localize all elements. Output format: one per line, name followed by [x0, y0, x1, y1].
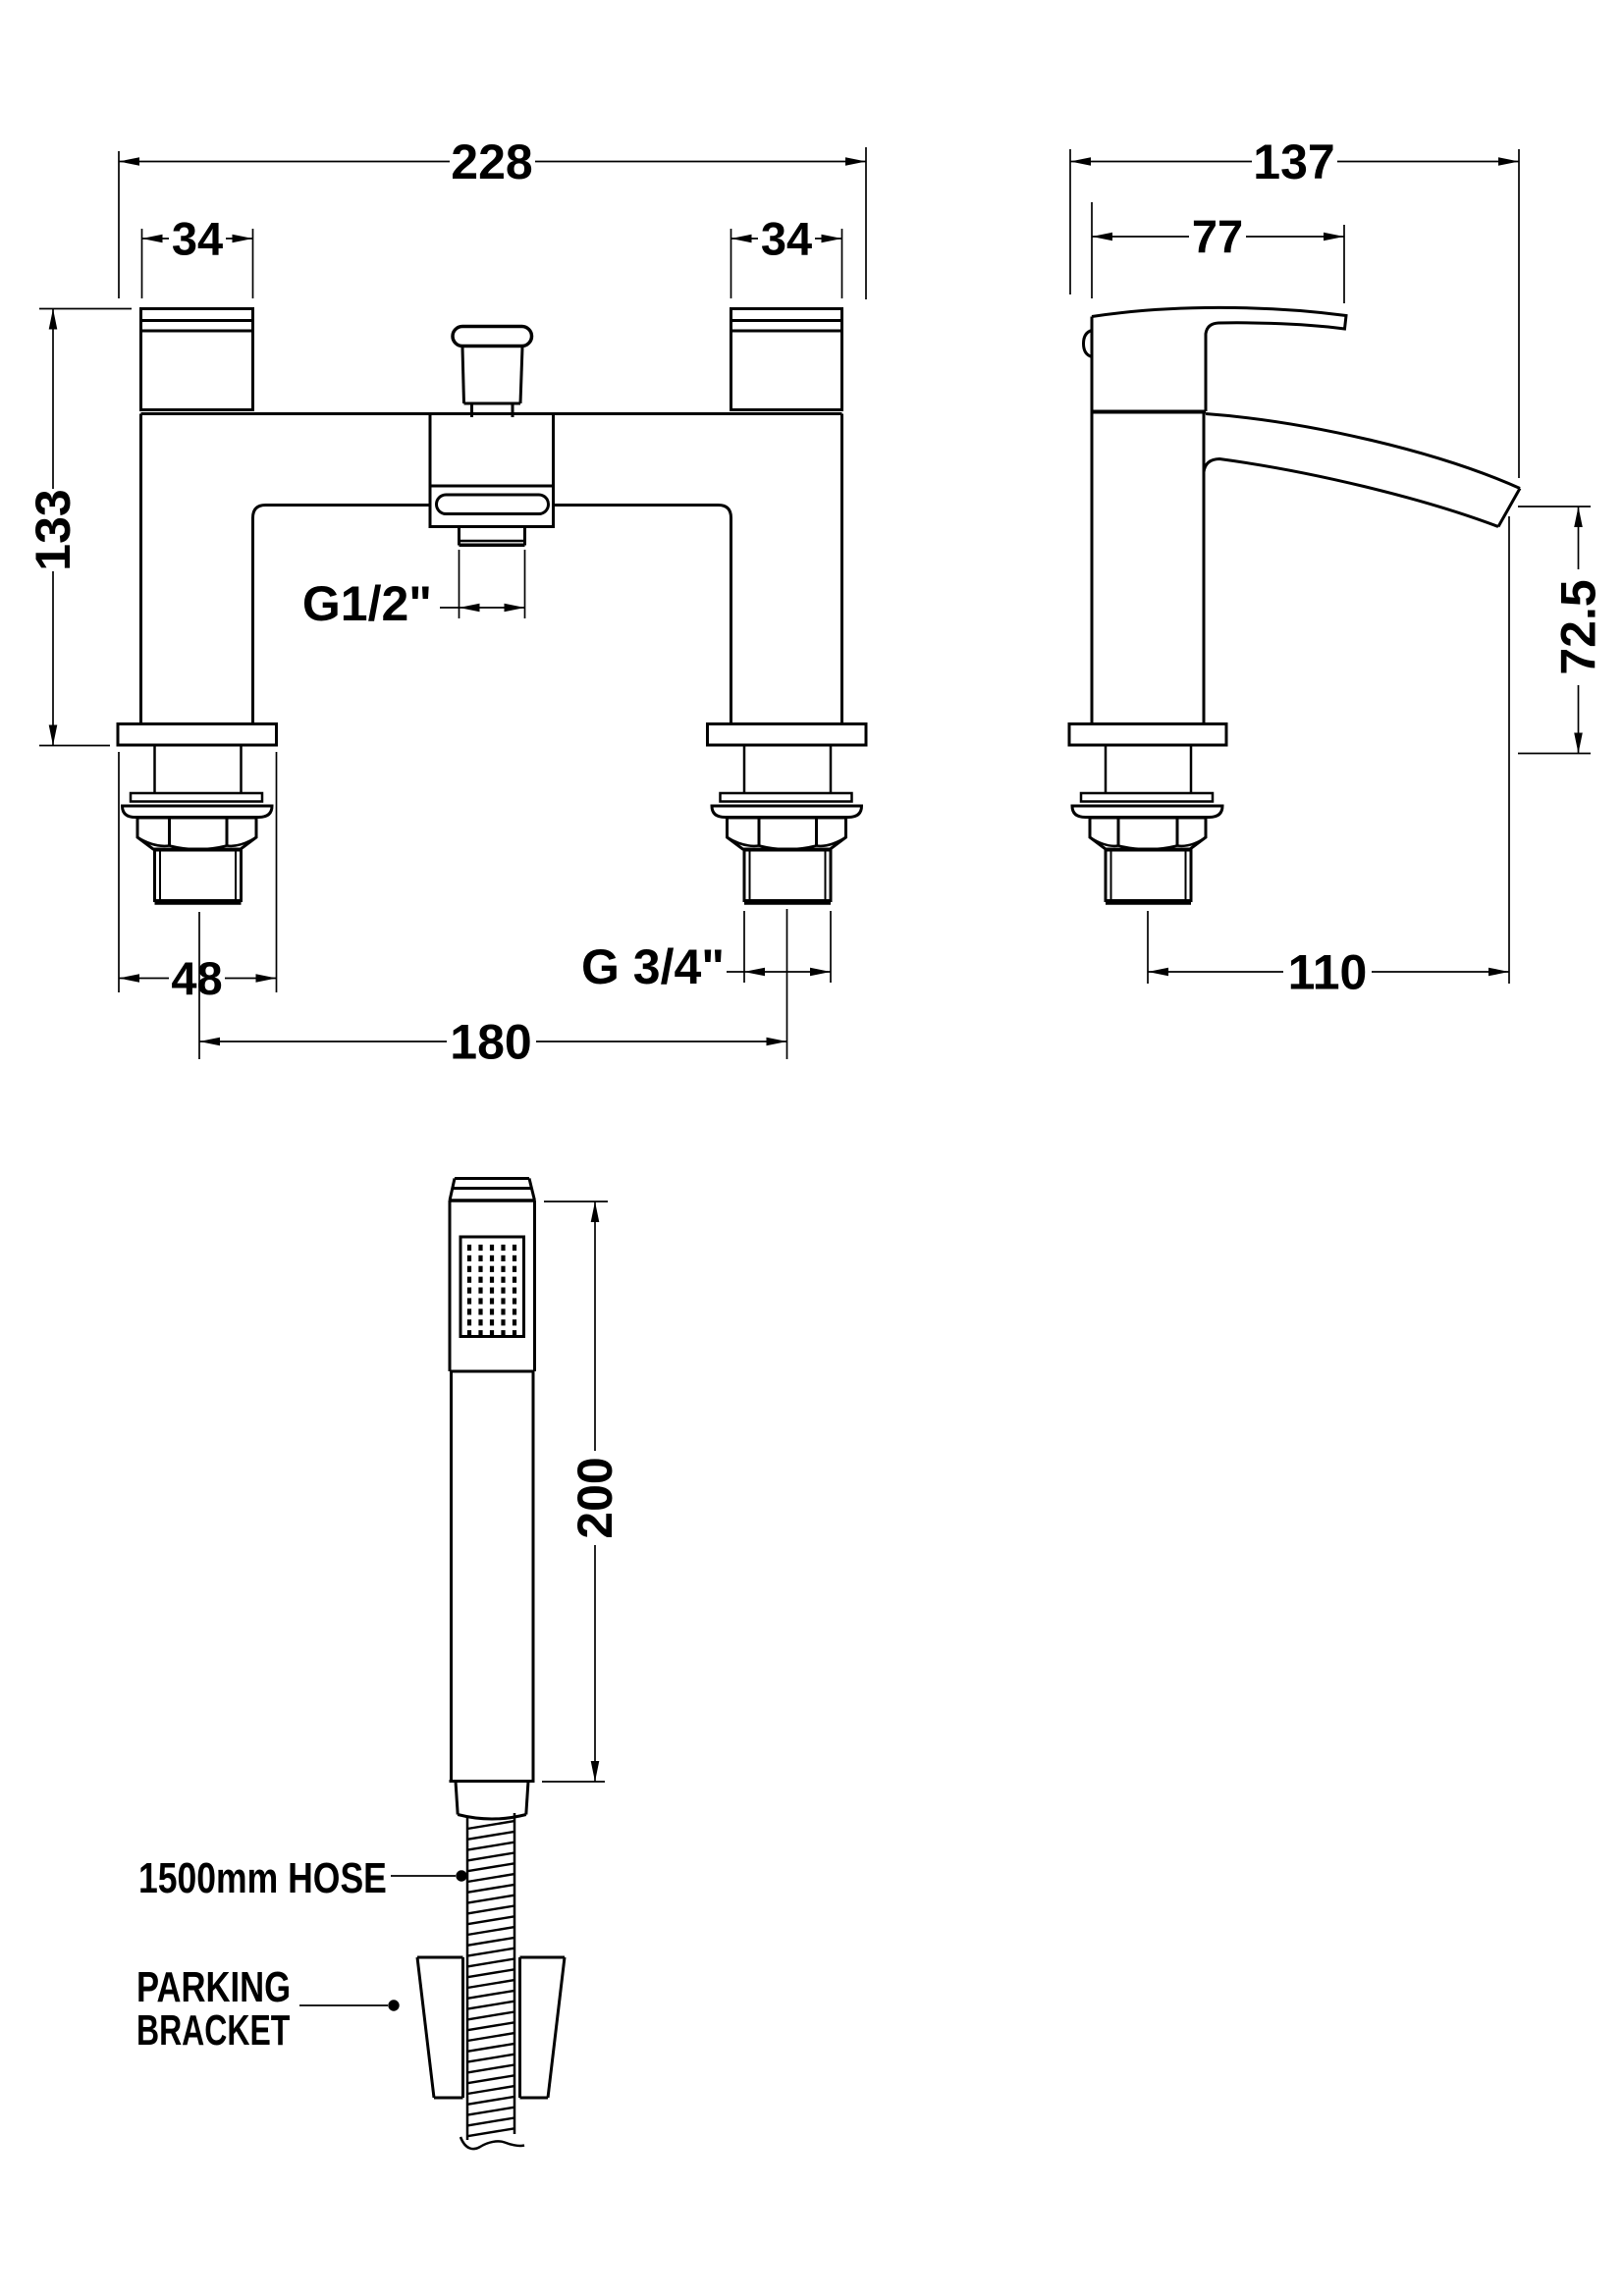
svg-text:110: 110 [1288, 945, 1368, 1000]
svg-text:200: 200 [568, 1457, 622, 1538]
svg-text:34: 34 [172, 213, 223, 265]
svg-text:77: 77 [1192, 211, 1243, 263]
svg-text:228: 228 [451, 134, 532, 189]
svg-text:133: 133 [26, 489, 81, 570]
svg-text:G 3/4": G 3/4" [581, 939, 725, 994]
svg-text:1500mm HOSE: 1500mm HOSE [138, 1854, 387, 1901]
svg-text:180: 180 [450, 1015, 531, 1070]
svg-text:BRACKET: BRACKET [136, 2006, 291, 2055]
svg-text:72.5: 72.5 [1551, 579, 1606, 674]
svg-text:34: 34 [761, 213, 812, 265]
svg-text:48: 48 [171, 952, 222, 1004]
svg-text:PARKING: PARKING [136, 1963, 291, 2011]
svg-text:G1/2": G1/2" [302, 576, 432, 631]
svg-text:137: 137 [1253, 134, 1334, 189]
